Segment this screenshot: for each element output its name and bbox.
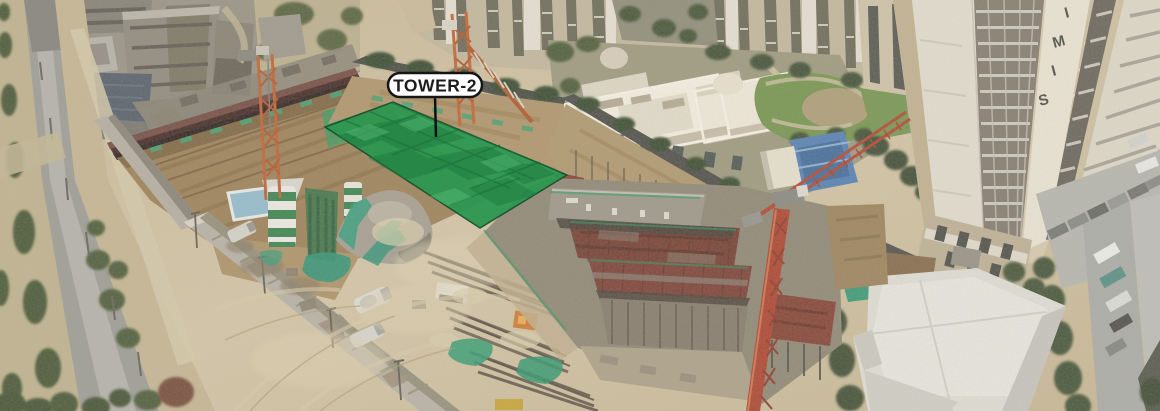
svg-text:TOWER-2: TOWER-2 — [393, 76, 477, 96]
